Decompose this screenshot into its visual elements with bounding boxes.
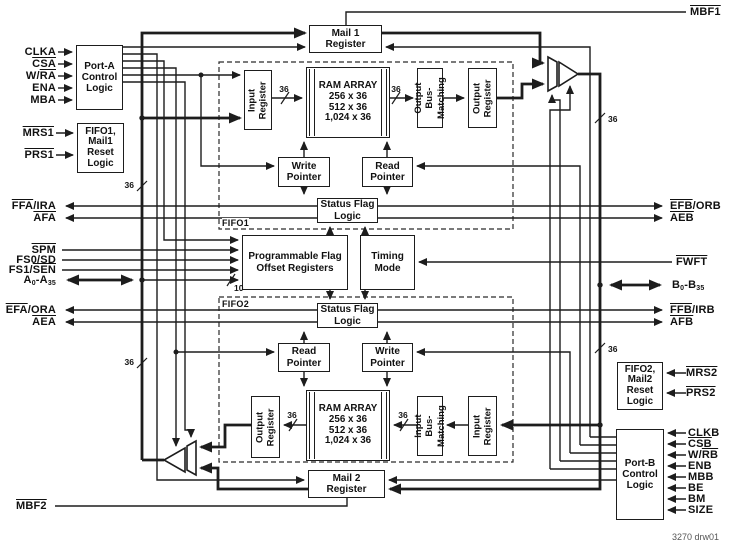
signal-a-bus: A0-A35 — [0, 274, 56, 290]
signal-prs1: PRS1 — [0, 149, 54, 161]
programmable-flag-offset-box: Programmable Flag Offset Registers — [242, 235, 348, 290]
signal-efb-orb: EFB/ORB — [670, 200, 721, 212]
mail1-register-label: Mail 1 Register — [325, 28, 365, 50]
signal-clka: CLKA — [0, 46, 56, 58]
out-reg2-to-mux2 — [201, 425, 251, 447]
signal-ffa-ira: FFA/IRA — [0, 200, 56, 212]
port-a-control-logic-box: Port-A Control Logic — [76, 45, 123, 110]
input-register1-label: Input Register — [247, 81, 270, 119]
signal-afb: AFB — [670, 316, 693, 328]
mbf2-line — [55, 498, 347, 506]
fifo2-mail2-reset-logic-label: FIFO2, Mail2 Reset Logic — [625, 365, 655, 407]
port-a-control-logic-label: Port-A Control Logic — [82, 61, 118, 95]
port-b-control-logic-label: Port-B Control Logic — [622, 458, 658, 492]
fifo2-region-label: FIFO2 — [222, 299, 249, 309]
signal-size: SIZE — [688, 504, 713, 516]
fifo2-mail2-reset-logic-box: FIFO2, Mail2 Reset Logic — [617, 362, 663, 410]
ram-array2-box: RAM ARRAY 256 x 36 512 x 36 1,024 x 36 — [306, 390, 390, 461]
write-pointer2-label: Write Pointer — [370, 346, 404, 368]
input-register2-label: Input Register — [471, 407, 494, 445]
read-pointer1-box: Read Pointer — [362, 157, 413, 187]
signal-aeb: AEB — [670, 212, 694, 224]
status-flag-logic1-label: Status Flag Logic — [321, 199, 375, 221]
timing-mode-label: Timing Mode — [371, 251, 404, 273]
signal-mrs2: MRS2 — [686, 367, 717, 379]
write-pointer1-box: Write Pointer — [278, 157, 330, 187]
signal-mbf1: MBF1 — [690, 6, 721, 18]
timing-mode-box: Timing Mode — [360, 235, 415, 290]
output-register1-label: Output Register — [471, 79, 494, 117]
mail2-register-label: Mail 2 Register — [326, 473, 366, 495]
status-flag-logic2-box: Status Flag Logic — [317, 303, 378, 328]
bus-width-36-a-lower: 36 — [110, 357, 134, 368]
mux1-icon — [548, 57, 557, 91]
input-bus-matching-box: Input Bus- Matching — [417, 396, 443, 456]
figure-caption: 3270 drw01 — [672, 532, 719, 542]
porta-mux2-enable — [123, 68, 176, 446]
out-reg1-to-mux1 — [497, 84, 543, 98]
signal-aea: AEA — [0, 316, 56, 328]
ram2-double-edge-right — [381, 392, 387, 459]
input-register2-box: Input Register — [468, 396, 497, 456]
signal-fwft: FWFT — [676, 256, 707, 268]
read-pointer2-box: Read Pointer — [278, 343, 330, 372]
output-register2-box: Output Register — [251, 396, 280, 458]
bus-width-36-ram2-out: 36 — [281, 410, 303, 421]
ram-array1-label: RAM ARRAY 256 x 36 512 x 36 1,024 x 36 — [319, 81, 378, 123]
write-pointer2-box: Write Pointer — [362, 343, 413, 372]
signal-wra: W/RA — [0, 70, 56, 82]
fifo-block-diagram: Port-A Control Logic FIFO1, Mail1 Reset … — [0, 0, 746, 547]
bus-width-10-pfo: 10 — [234, 283, 250, 294]
mail1-to-mux1 — [382, 33, 543, 63]
fifo1-mail1-reset-logic-label: FIFO1, Mail1 Reset Logic — [85, 127, 115, 169]
bus-width-36-ram1-out: 36 — [385, 84, 407, 95]
tristate-buffer1-icon — [559, 62, 578, 86]
signal-mba: MBA — [0, 94, 56, 106]
ram-array2-label: RAM ARRAY 256 x 36 512 x 36 1,024 x 36 — [319, 404, 378, 446]
signal-ena: ENA — [0, 82, 56, 94]
fifo1-mail1-reset-logic-box: FIFO1, Mail1 Reset Logic — [77, 123, 124, 173]
mail2-register-box: Mail 2 Register — [308, 470, 385, 498]
signal-mrs1: MRS1 — [0, 127, 54, 139]
read-pointer2-label: Read Pointer — [287, 346, 321, 368]
status-flag-logic2-label: Status Flag Logic — [321, 304, 375, 326]
bus-width-36-b-upper: 36 — [608, 114, 628, 125]
ram1-double-edge-left — [309, 69, 315, 136]
bus-width-36-b-lower: 36 — [608, 344, 628, 355]
input-register1-box: Input Register — [244, 70, 272, 130]
ram-array1-box: RAM ARRAY 256 x 36 512 x 36 1,024 x 36 — [306, 67, 390, 138]
write-pointer1-label: Write Pointer — [287, 161, 321, 183]
programmable-flag-offset-label: Programmable Flag Offset Registers — [248, 251, 341, 273]
portb-mux1-select — [552, 95, 560, 461]
signal-mbf2: MBF2 — [16, 500, 47, 512]
signal-ffb-irb: FFB/IRB — [670, 304, 715, 316]
mux2-icon — [187, 441, 196, 475]
mail1-register-box: Mail 1 Register — [309, 25, 382, 53]
output-register2-label: Output Register — [254, 408, 277, 446]
output-bus-matching-label: Output Bus- Matching — [413, 77, 447, 119]
porta-pfo-ctrl — [123, 61, 238, 240]
tristate-buffer2-icon — [164, 448, 185, 472]
fifo1-region-label: FIFO1 — [222, 218, 249, 228]
bus-width-36-ram2-in: 36 — [392, 410, 414, 421]
read-pointer1-label: Read Pointer — [370, 161, 404, 183]
port-b-control-logic-box: Port-B Control Logic — [616, 429, 664, 520]
bus-width-36-a-upper: 36 — [110, 180, 134, 191]
status-flag-logic1-box: Status Flag Logic — [317, 198, 378, 223]
signal-b-bus: B0-B35 — [672, 279, 704, 295]
output-bus-matching-box: Output Bus- Matching — [417, 68, 443, 128]
mbf1-line — [346, 12, 686, 25]
signal-prs2: PRS2 — [686, 387, 716, 399]
signal-csa: CSA — [0, 58, 56, 70]
output-register1-box: Output Register — [468, 68, 497, 128]
ram2-double-edge-left — [309, 392, 315, 459]
signal-afa: AFA — [0, 212, 56, 224]
bus-width-36-ram1-in: 36 — [273, 84, 295, 95]
input-bus-matching-label: Input Bus- Matching — [413, 405, 447, 447]
signal-efa-ora: EFA/ORA — [0, 304, 56, 316]
mail2-to-mux2 — [201, 468, 308, 489]
ram1-double-edge-right — [381, 69, 387, 136]
